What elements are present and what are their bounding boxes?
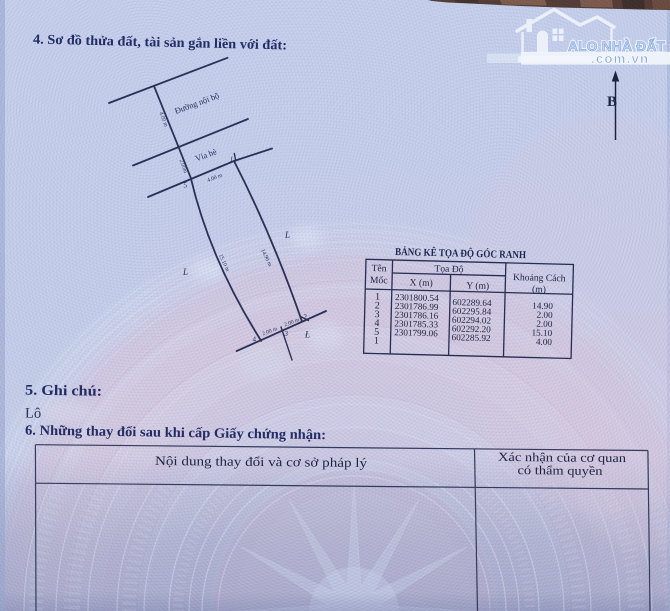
svg-text:4.00: 4.00 — [536, 337, 553, 347]
svg-text:Y (m): Y (m) — [466, 280, 489, 292]
svg-text:4.00 m: 4.00 m — [207, 172, 224, 183]
svg-text:Nội dung thay đổi và cơ sở phá: Nội dung thay đổi và cơ sở pháp lý — [155, 453, 368, 470]
svg-text:1: 1 — [374, 336, 379, 347]
svg-text:6. Những thay đổi sau khi cấp: 6. Những thay đổi sau khi cấp Giấy chứng… — [25, 424, 326, 444]
svg-text:2.00m: 2.00m — [178, 159, 189, 175]
svg-text:Lô: Lô — [25, 406, 41, 422]
svg-text:X (m): X (m) — [409, 277, 432, 289]
svg-text:2: 2 — [304, 313, 308, 321]
svg-text:4: 4 — [253, 336, 257, 344]
svg-text:L: L — [182, 267, 188, 277]
svg-text:5. Ghi chú:: 5. Ghi chú: — [25, 383, 102, 400]
svg-text:L: L — [284, 230, 290, 240]
svg-text:có thẩm quyền: có thẩm quyền — [517, 463, 602, 478]
svg-text:(m): (m) — [532, 284, 546, 295]
svg-text:Khoảng Cách: Khoảng Cách — [513, 272, 566, 284]
svg-text:Vỉa hè: Vỉa hè — [194, 147, 218, 163]
svg-text:5: 5 — [184, 182, 188, 190]
svg-text:.com.vn: .com.vn — [591, 51, 649, 66]
svg-text:2301799.06: 2301799.06 — [394, 327, 438, 338]
svg-text:Đường nội bộ: Đường nội bộ — [174, 91, 221, 116]
svg-text:14.90 m: 14.90 m — [259, 248, 273, 268]
svg-text:Tên: Tên — [371, 263, 386, 274]
svg-text:4. Sơ đồ thửa đất, tài sản gắn: 4. Sơ đồ thửa đất, tài sản gắn liền với … — [33, 32, 287, 53]
svg-text:Tọa Độ: Tọa Độ — [434, 264, 464, 276]
svg-text:BẢNG KÊ TỌA ĐỘ GÓC RANH: BẢNG KÊ TỌA ĐỘ GÓC RANH — [395, 245, 527, 261]
svg-text:Ł: Ł — [304, 330, 310, 340]
svg-text:B: B — [607, 94, 617, 110]
svg-text:1: 1 — [230, 156, 234, 164]
svg-text:602285.92: 602285.92 — [451, 332, 491, 343]
svg-text:4.00 m: 4.00 m — [158, 111, 169, 128]
svg-text:3: 3 — [284, 330, 289, 338]
svg-text:Mốc: Mốc — [370, 275, 388, 286]
